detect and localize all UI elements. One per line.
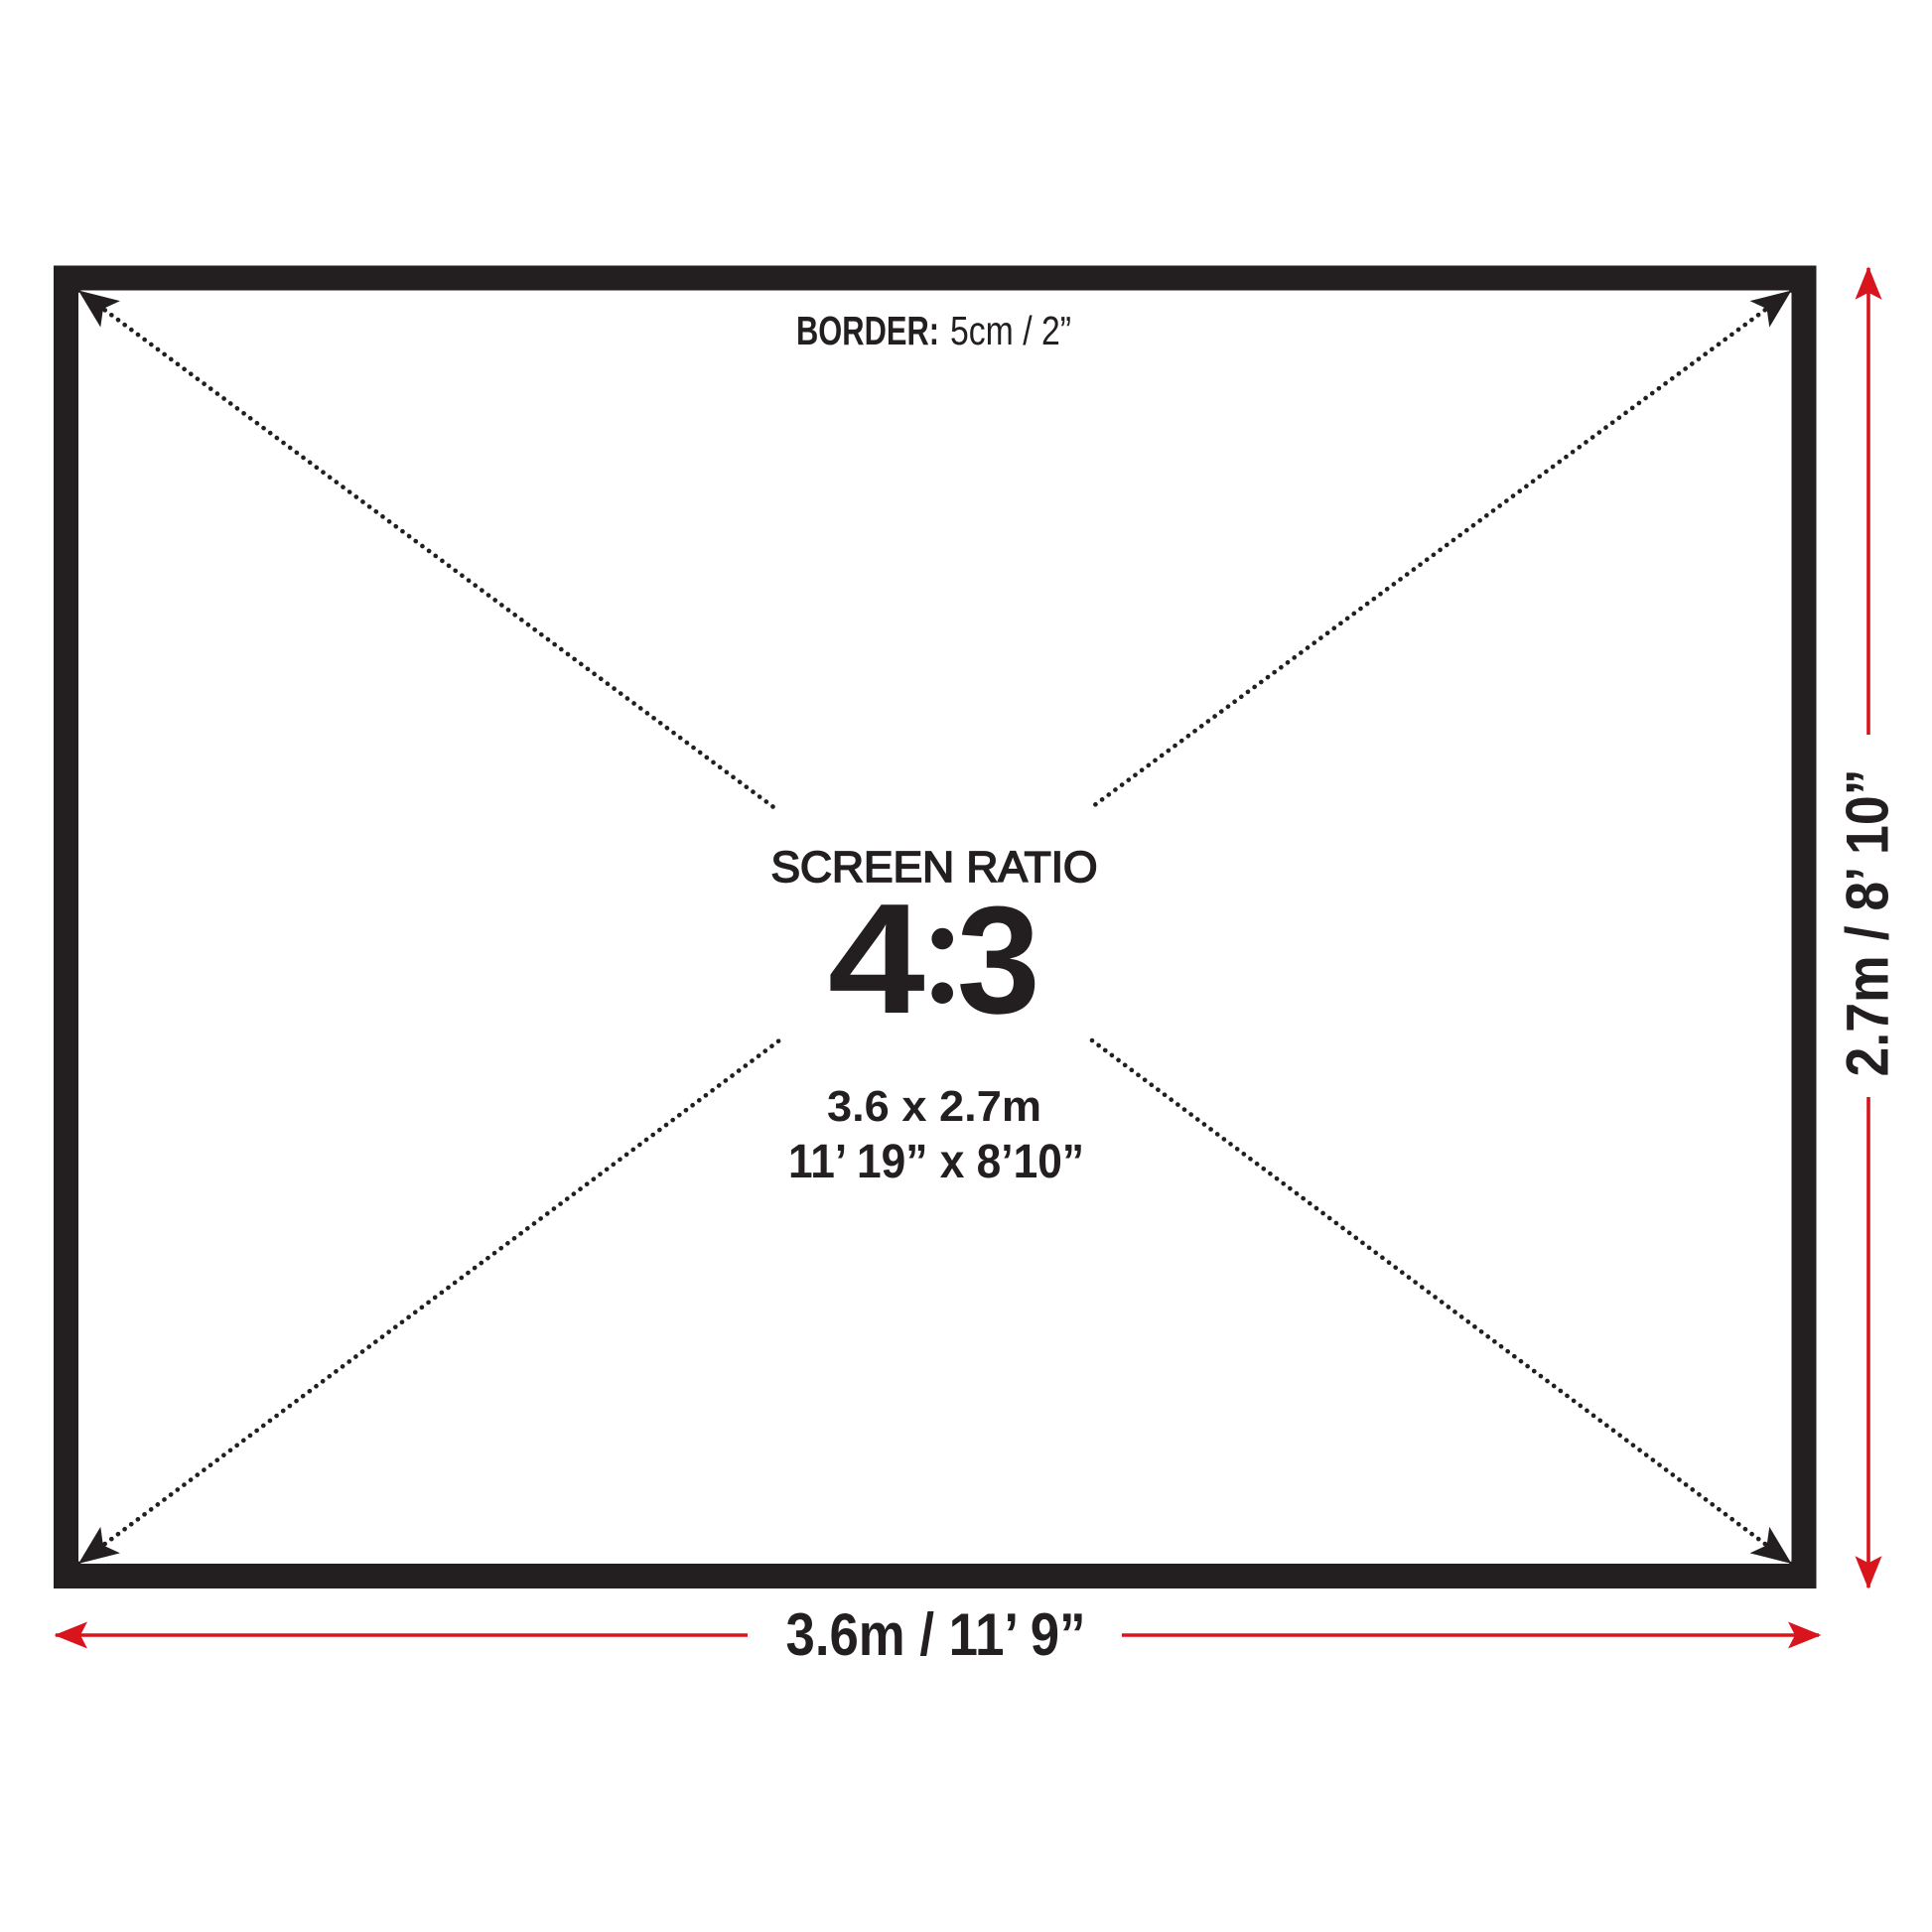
svg-text:4: 4 [828,872,925,1046]
svg-text:11’ 19” x 8’10”: 11’ 19” x 8’10” [788,1136,1084,1188]
svg-text:2.7m / 8’ 10”: 2.7m / 8’ 10” [1835,769,1901,1077]
svg-text:3: 3 [957,875,1040,1045]
svg-text:5cm / 2”: 5cm / 2” [950,308,1071,353]
svg-text:3.6m / 11’ 9”: 3.6m / 11’ 9” [786,1601,1086,1668]
svg-text:SCREEN RATIO: SCREEN RATIO [771,844,1098,892]
svg-text:3.6 x 2.7m: 3.6 x 2.7m [827,1082,1041,1131]
svg-text:BORDER:: BORDER: [796,308,939,353]
